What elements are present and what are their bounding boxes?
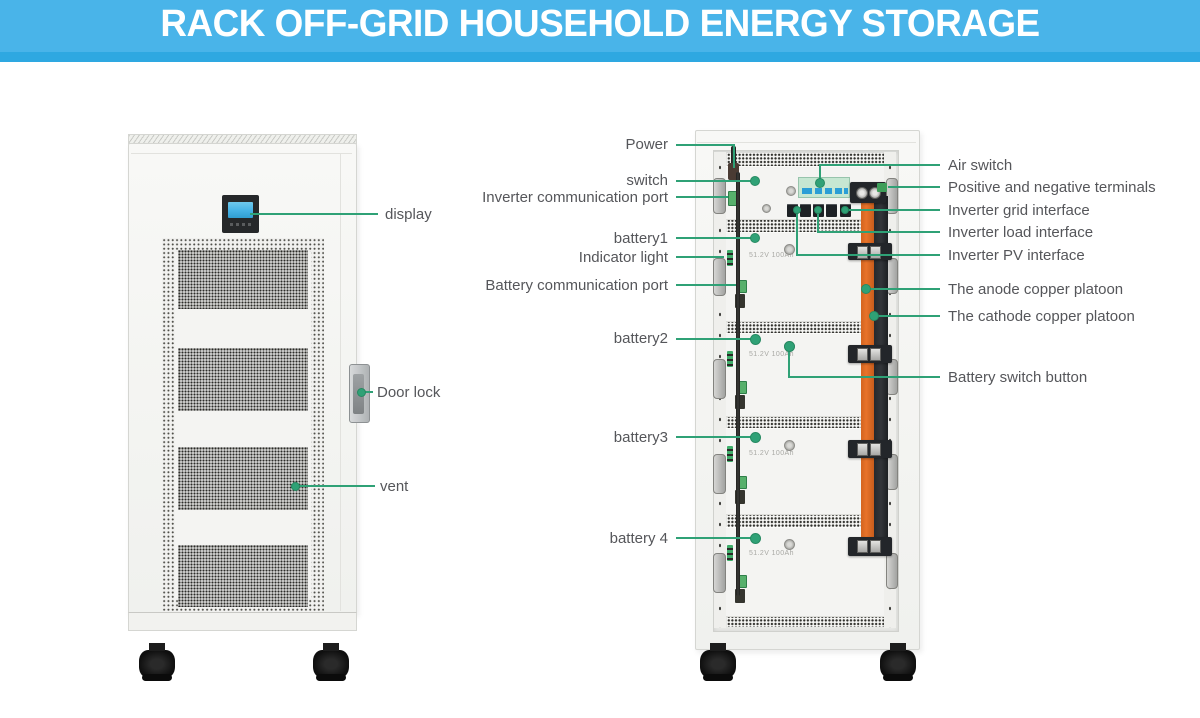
rail-connector: [713, 359, 726, 399]
rail-connector: [713, 454, 726, 494]
energy-storage-diagram: RACK OFF-GRID HOUSEHOLD ENERGY STORAGE: [0, 0, 1200, 718]
label-inverter-load: Inverter load interface: [948, 224, 1093, 242]
label-vent: vent: [380, 478, 408, 496]
vent-panel-4: [178, 545, 308, 607]
label-battery4: battery 4: [610, 530, 668, 548]
marker-dot-load-interface: [814, 206, 822, 214]
label-battery-comm-port: Battery communication port: [485, 277, 668, 295]
label-battery3: battery3: [614, 429, 668, 447]
marker-dot-anode: [861, 284, 871, 294]
vent-panel-2: [178, 348, 308, 411]
caster-foot: [700, 650, 736, 678]
marker-dot-battery4: [750, 533, 761, 544]
marker-dot-cathode: [869, 311, 879, 321]
indicator-light: [727, 545, 733, 561]
marker-dot-door-lock: [357, 388, 366, 397]
leader-line-door-lock: [365, 391, 373, 393]
label-indicator-light: Indicator light: [579, 249, 668, 267]
banner-bottom-strip: [0, 52, 1200, 62]
indicator-light: [727, 250, 733, 266]
marker-dot-battery1: [750, 233, 760, 243]
label-battery-switch-button: Battery switch button: [948, 369, 1087, 387]
label-battery1: battery1: [614, 230, 668, 248]
rail-connector: [713, 258, 726, 296]
label-door-lock: Door lock: [377, 384, 440, 402]
label-air-switch: Air switch: [948, 157, 1012, 175]
leader-line-display: [250, 213, 378, 215]
display-buttons: [230, 223, 252, 226]
battery-rating: 51.2V 100Ah: [749, 550, 794, 557]
rail-connector: [886, 553, 898, 589]
vent-panel-3: [178, 447, 308, 510]
terminal-green-cap: [877, 183, 887, 192]
caster-foot: [139, 650, 175, 678]
label-display: display: [385, 206, 432, 224]
battery-rating: 51.2V 100Ah: [749, 450, 794, 457]
marker-dot-pv-interface: [793, 206, 801, 214]
marker-dot-battery3: [750, 432, 761, 443]
label-battery2: battery2: [614, 330, 668, 348]
marker-dot-vent: [291, 482, 300, 491]
label-switch: switch: [626, 172, 668, 190]
label-inverter-grid: Inverter grid interface: [948, 202, 1090, 220]
label-inverter-pv: Inverter PV interface: [948, 247, 1085, 265]
indicator-light: [727, 351, 733, 367]
label-cathode-copper: The cathode copper platoon: [948, 308, 1135, 326]
marker-dot-battery2: [750, 334, 761, 345]
vent-panel-1: [178, 250, 308, 309]
marker-dot-switch: [750, 176, 760, 186]
display-screen: [228, 202, 253, 218]
marker-dot-battery-switch: [784, 341, 795, 352]
label-power: Power: [625, 136, 668, 154]
leader-line-vent: [299, 485, 375, 487]
label-anode-copper: The anode copper platoon: [948, 281, 1123, 299]
caster-foot: [880, 650, 916, 678]
rail-connector: [713, 553, 726, 593]
front-cabinet-base: [128, 612, 357, 631]
page-title: RACK OFF-GRID HOUSEHOLD ENERGY STORAGE: [18, 3, 1182, 46]
marker-dot-grid-interface: [841, 206, 849, 214]
communication-cable: [736, 172, 740, 596]
label-pos-neg-terminals: Positive and negative terminals: [948, 179, 1156, 197]
caster-foot: [313, 650, 349, 678]
label-inverter-comm-port: Inverter communication port: [482, 189, 668, 207]
marker-dot-air-switch: [815, 178, 825, 188]
banner: RACK OFF-GRID HOUSEHOLD ENERGY STORAGE: [0, 0, 1200, 62]
indicator-light: [727, 446, 733, 462]
